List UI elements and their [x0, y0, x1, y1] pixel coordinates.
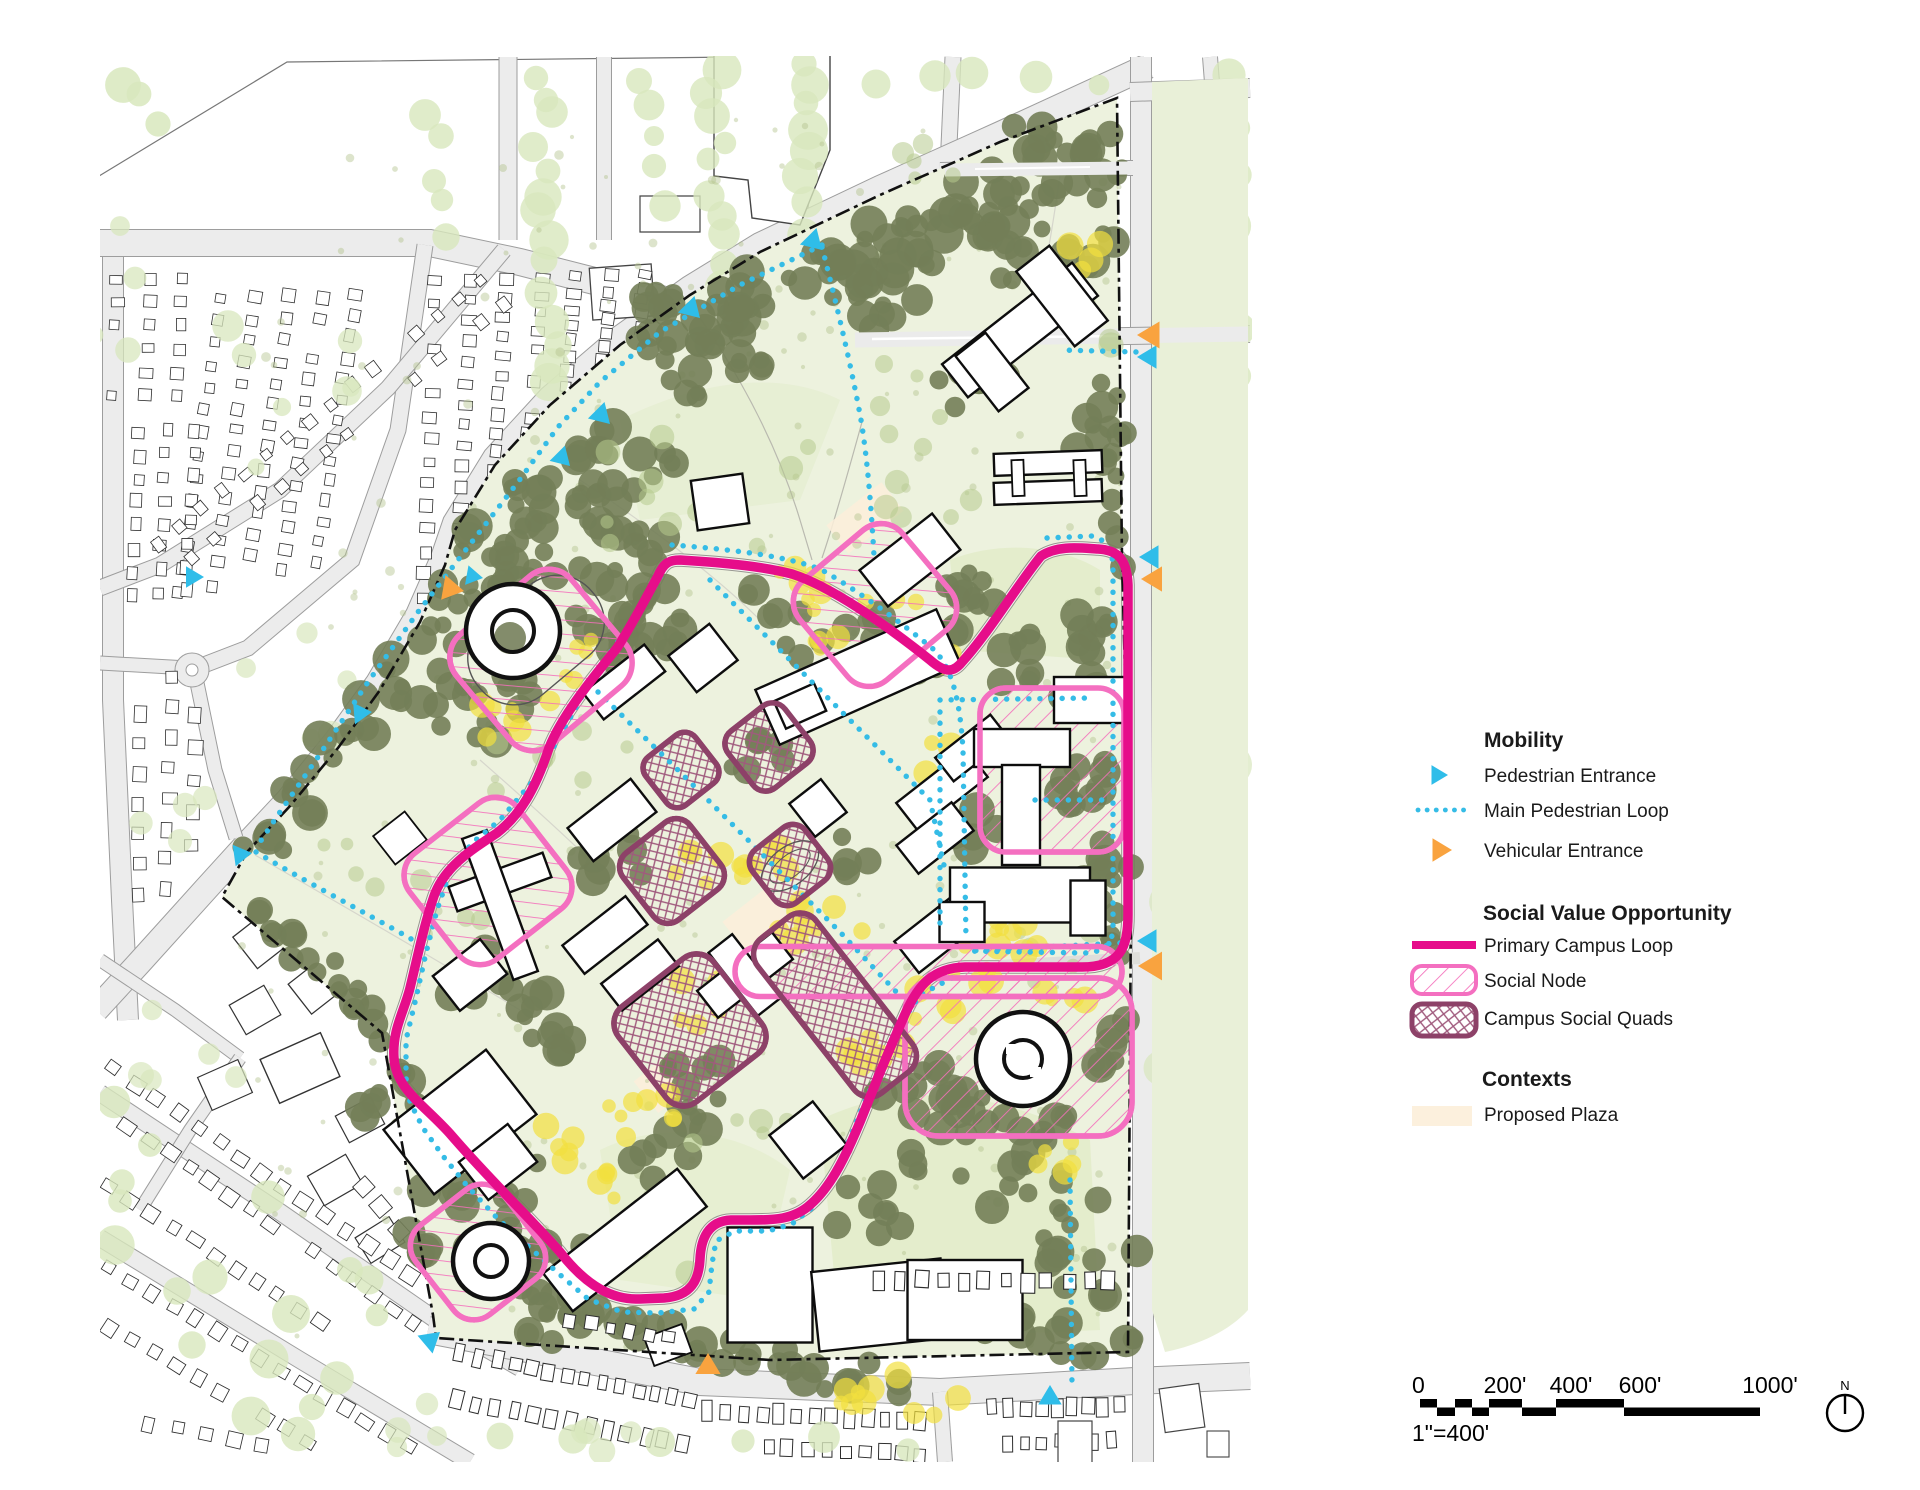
svg-text:Campus Social Quads: Campus Social Quads: [1484, 1009, 1673, 1030]
svg-text:Vehicular Entrance: Vehicular Entrance: [1484, 841, 1644, 862]
svg-text:Contexts: Contexts: [1482, 1068, 1572, 1091]
svg-text:1"=400': 1"=400': [1412, 1420, 1489, 1446]
svg-text:N: N: [1840, 1378, 1849, 1393]
svg-text:0: 0: [1412, 1372, 1425, 1398]
svg-text:200': 200': [1484, 1372, 1527, 1398]
svg-text:1000': 1000': [1742, 1372, 1798, 1398]
svg-text:Social Value Opportunity: Social Value Opportunity: [1483, 902, 1732, 925]
svg-text:600': 600': [1619, 1372, 1662, 1398]
svg-text:Primary Campus Loop: Primary Campus Loop: [1484, 936, 1673, 957]
svg-text:Main Pedestrian Loop: Main Pedestrian Loop: [1484, 801, 1669, 822]
svg-text:Social Node: Social Node: [1484, 971, 1586, 992]
svg-text:Mobility: Mobility: [1484, 729, 1564, 752]
svg-text:Pedestrian Entrance: Pedestrian Entrance: [1484, 766, 1656, 787]
svg-text:400': 400': [1550, 1372, 1593, 1398]
svg-text:Proposed Plaza: Proposed Plaza: [1484, 1105, 1619, 1126]
